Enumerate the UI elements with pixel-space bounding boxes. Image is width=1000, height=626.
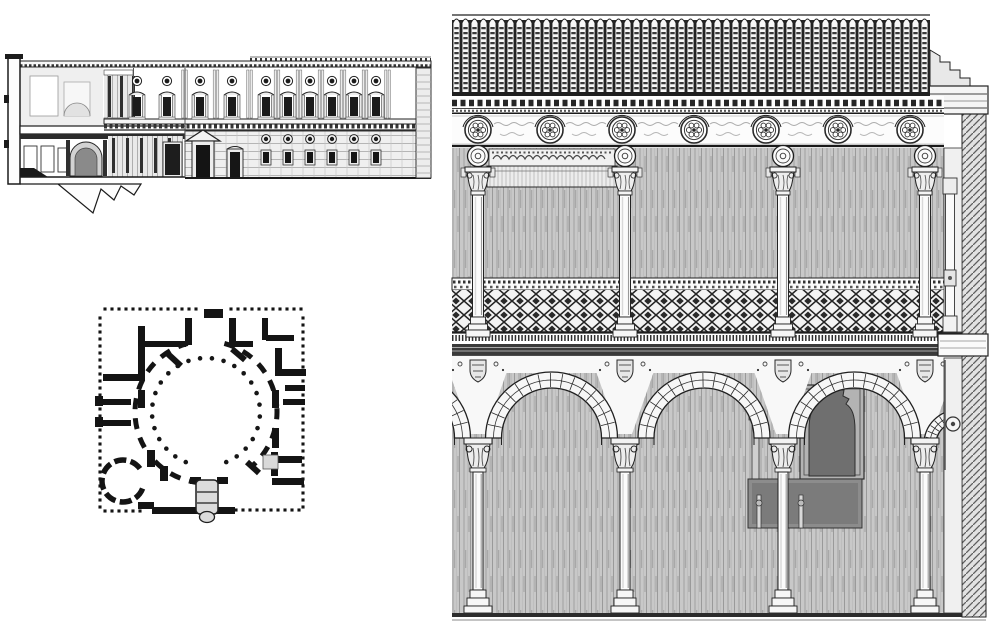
porthole-window — [283, 135, 293, 165]
wall-segment — [272, 428, 279, 448]
main-cornice — [20, 61, 431, 67]
porthole-window — [305, 135, 315, 165]
wall-segment — [229, 318, 236, 345]
facade-window — [280, 76, 296, 119]
grey-room-block — [263, 455, 278, 469]
wall-segment — [272, 478, 304, 485]
wall-segment — [283, 399, 305, 405]
wall-segment — [160, 466, 168, 481]
wall-segment — [282, 369, 306, 376]
wall-segment — [272, 390, 279, 408]
jagged-break — [20, 184, 141, 213]
wall-segment — [231, 341, 253, 347]
wall-segment — [95, 396, 103, 406]
wall-segment — [185, 318, 192, 345]
porthole-window — [261, 135, 271, 165]
wall-segment — [164, 341, 186, 347]
facade-window — [224, 76, 240, 119]
gallery-beam — [487, 166, 617, 187]
wall-segment — [278, 456, 302, 463]
facade-window — [258, 76, 274, 119]
storey-divider-band — [452, 333, 962, 356]
wall-segment — [285, 385, 305, 391]
capital-roundel — [468, 146, 489, 167]
figure-courtyard-arcade-elevation — [444, 0, 1000, 626]
roof-tiles — [452, 15, 930, 96]
frieze-medallion — [607, 115, 637, 143]
section-lower-interior — [20, 136, 185, 177]
side-door — [227, 147, 243, 179]
section-upper-interior — [21, 68, 135, 126]
courtyard-wall-arcs — [135, 343, 277, 482]
frieze-medallion — [679, 115, 709, 143]
porthole-window — [349, 135, 359, 165]
entrance-vestibule — [196, 480, 218, 523]
figure-palace-floor-plan — [80, 295, 325, 535]
courtyard-column-ring — [150, 356, 262, 464]
facade-window — [368, 76, 384, 119]
frieze-medallion — [463, 115, 493, 143]
wall-segment — [138, 502, 154, 509]
porthole-window — [371, 135, 381, 165]
engraving-plate — [0, 0, 1000, 626]
porthole-window — [327, 135, 337, 165]
wall-segment — [95, 417, 103, 427]
frieze-medallion — [823, 115, 853, 143]
sectioned-wall — [4, 54, 23, 184]
dentil-cornice — [452, 96, 944, 113]
figure-palace-section-elevation — [0, 40, 440, 225]
wall-segment — [266, 335, 294, 341]
capital-roundel — [773, 146, 794, 167]
medallion-frieze — [452, 114, 944, 146]
facade-window — [192, 76, 208, 119]
wall-segment — [103, 420, 131, 426]
wall-segment — [103, 374, 145, 381]
ground-line — [452, 613, 986, 620]
frieze-medallion — [895, 115, 925, 143]
wall-segment — [147, 450, 155, 467]
facade-window — [302, 76, 318, 119]
gallery-carved-frieze — [489, 149, 615, 166]
capital-roundel — [615, 146, 636, 167]
parapet-dotted-band — [452, 278, 946, 290]
wall-segment — [217, 477, 228, 484]
facade-window — [159, 76, 175, 119]
frieze-medallion — [751, 115, 781, 143]
facade-window — [324, 76, 340, 119]
corner-quoins — [416, 68, 431, 178]
wall-segment — [152, 507, 235, 514]
wall-segment — [138, 326, 145, 378]
ground-floor-arcade — [444, 356, 992, 613]
capital-roundel — [915, 146, 936, 167]
lattice-parapet — [452, 290, 946, 332]
wall-segment — [103, 399, 131, 405]
frieze-medallion — [535, 115, 565, 143]
wall-segment — [138, 390, 145, 408]
octagonal-chapel — [102, 460, 143, 502]
roofline — [250, 57, 431, 60]
wall-segment — [275, 348, 282, 376]
facade-window — [346, 76, 362, 119]
